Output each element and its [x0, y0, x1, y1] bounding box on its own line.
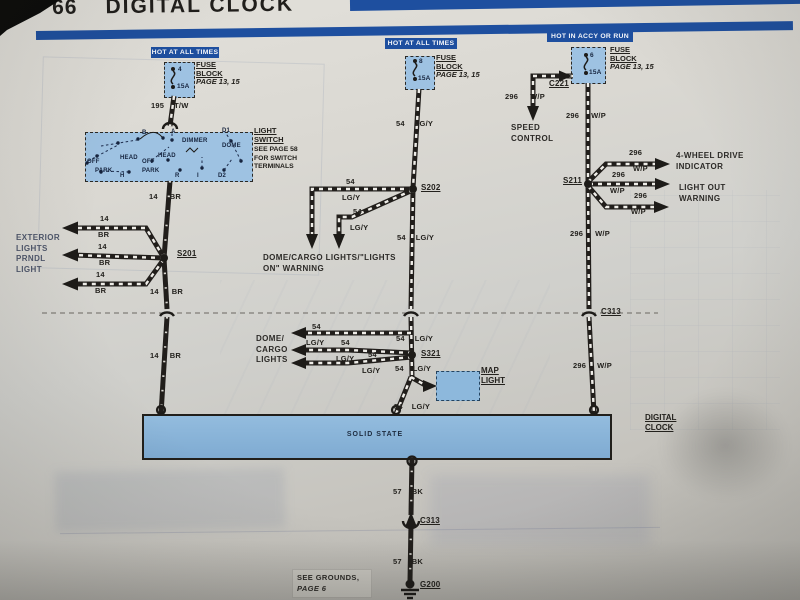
speed-control-label: SPEED CONTROL — [511, 123, 553, 144]
wire-label-57-bk: 57BK — [393, 488, 423, 496]
digital-clock-label: DIGITAL CLOCK — [645, 413, 676, 433]
wire-label-57-bk: 57BK — [393, 558, 423, 566]
banner-hot-in-accy-or-run: HOT IN ACCY OR RUN — [547, 31, 633, 42]
switch-terminal-off2: OFF — [142, 159, 155, 165]
switch-terminal-r: R — [175, 173, 180, 179]
dome-cargo-warning-label: DOME/CARGO LIGHTS/"LIGHTS ON" WARNING — [263, 253, 396, 274]
wire-stripe-hatching — [72, 76, 663, 581]
wire-label-color: W/P — [610, 187, 625, 195]
splice-label-s202: S202 — [421, 184, 440, 192]
wire-label-54-lgy: 54LG/Y — [396, 120, 433, 128]
ground-label-g200: G200 — [420, 581, 440, 589]
wire-label-color: BR — [98, 231, 109, 239]
exterior-lights-label: EXTERIOR LIGHTS PRNDL LIGHT — [16, 233, 60, 275]
arrowheads — [62, 71, 670, 528]
wire-label-54-lgy: 54LG/Y — [394, 403, 430, 411]
wire-label-14-br: 14BR — [150, 352, 181, 360]
switch-terminal-h: H — [120, 173, 125, 179]
fuse3-terminal: 6 — [590, 52, 594, 59]
splice-dots — [160, 180, 592, 589]
wire-label-color: LG/Y — [350, 224, 368, 232]
fuse1-terminal: 4 — [178, 66, 182, 73]
ground-symbol — [401, 590, 419, 598]
connector-symbols — [157, 123, 598, 528]
wire-label-color: W/P — [631, 208, 646, 216]
connector-label-c313: C313 — [601, 308, 621, 316]
fuse3-rating: 15A — [589, 69, 602, 76]
wire-label-num: 54 — [346, 178, 355, 186]
wire-label-num: 54 — [341, 339, 350, 347]
switch-terminal-off1: OFF — [87, 159, 100, 165]
wire-label-296-wp: 296W/P — [573, 362, 612, 370]
wire-label-color: BR — [95, 287, 106, 295]
wire-label-color: LG/Y — [306, 339, 324, 347]
light-switch-label: LIGHT SWITCH SEE PAGE 58 FOR SWITCH TERM… — [254, 127, 298, 172]
wire-label-num: 14 — [98, 243, 107, 251]
switch-terminal-a: A — [171, 129, 176, 135]
wire-base-lines — [72, 76, 663, 581]
splice-label-s321: S321 — [421, 350, 440, 358]
switch-terminal-dimmer: DIMMER — [182, 138, 208, 144]
splice-label-s201: S201 — [177, 250, 196, 258]
wire-label-296-wp: 296W/P — [570, 230, 610, 238]
wire-label-color: LG/Y — [342, 194, 360, 202]
wire-label-color: BR — [99, 259, 110, 267]
switch-terminal-d2: D2 — [218, 173, 226, 179]
dome-cargo-lights-label: DOME/ CARGO LIGHTS — [256, 334, 288, 366]
connector-label-c221: C221 — [549, 80, 569, 88]
wire-label-195-tw: 195T/W — [151, 102, 188, 110]
fuse2-label: FUSE BLOCK PAGE 13, 15 — [436, 54, 480, 80]
map-light-label: MAP LIGHT — [481, 366, 505, 386]
wire-label-color: LG/Y — [362, 367, 380, 375]
wire-label-num: 14 — [96, 271, 105, 279]
fuse1-label: FUSE BLOCK PAGE 13, 15 — [196, 61, 240, 87]
wire-label-num: 54 — [368, 351, 377, 359]
wire-label-54-lgy: 54LG/Y — [396, 335, 433, 343]
banner-hot-at-all-times-1: HOT AT ALL TIMES — [151, 47, 219, 58]
connector-label-c313: C313 — [420, 517, 440, 525]
switch-terminal-b: B — [142, 130, 147, 136]
switch-terminal-park1: PARK — [95, 168, 112, 174]
wire-label-num: 296 — [634, 192, 647, 200]
fuse2-rating: 15A — [418, 75, 431, 82]
wire-label-54-lgy: 54LG/Y — [397, 234, 434, 242]
splice-label-s211: S211 — [563, 177, 582, 185]
wire-label-color: LG/Y — [336, 355, 354, 363]
wire-label-296-wp: 296W/P — [505, 93, 545, 101]
wire-label-num: 54 — [353, 208, 362, 216]
wire-label-num: 296 — [629, 149, 642, 157]
wire-label-num: 296 — [612, 171, 625, 179]
switch-terminal-park2: PARK — [142, 168, 159, 174]
light-out-warning-label: LIGHT OUT WARNING — [679, 183, 726, 204]
wire-label-num: 54 — [312, 323, 321, 331]
wire-label-14-br: 14BR — [150, 288, 183, 296]
wire-label-296-wp: 296W/P — [566, 112, 606, 120]
switch-terminal-head1: HEAD — [120, 155, 138, 161]
switch-terminal-dome: DOME — [222, 143, 241, 149]
switch-terminal-d1: D1 — [222, 128, 230, 134]
four-wheel-drive-indicator-label: 4-WHEEL DRIVE INDICATOR — [676, 151, 744, 172]
wire-label-54-lgy: 54LG/Y — [395, 365, 431, 373]
wire-label-14-br: 14BR — [149, 193, 181, 201]
wiring-layer — [0, 0, 800, 600]
wire-label-num: 14 — [100, 215, 109, 223]
wire-label-color: W/P — [633, 165, 648, 173]
manual-page-photo: 66DIGITAL CLOCK SOLID STATE SEE GROUNDS,… — [0, 0, 800, 600]
switch-terminal-head2: HEAD — [158, 153, 176, 159]
fuse1-rating: 15A — [177, 83, 190, 90]
fuse3-label: FUSE BLOCK PAGE 13, 15 — [610, 46, 654, 72]
banner-hot-at-all-times-2: HOT AT ALL TIMES — [385, 38, 457, 49]
switch-terminal-i: I — [197, 173, 199, 179]
fuse2-terminal: 8 — [419, 58, 423, 65]
